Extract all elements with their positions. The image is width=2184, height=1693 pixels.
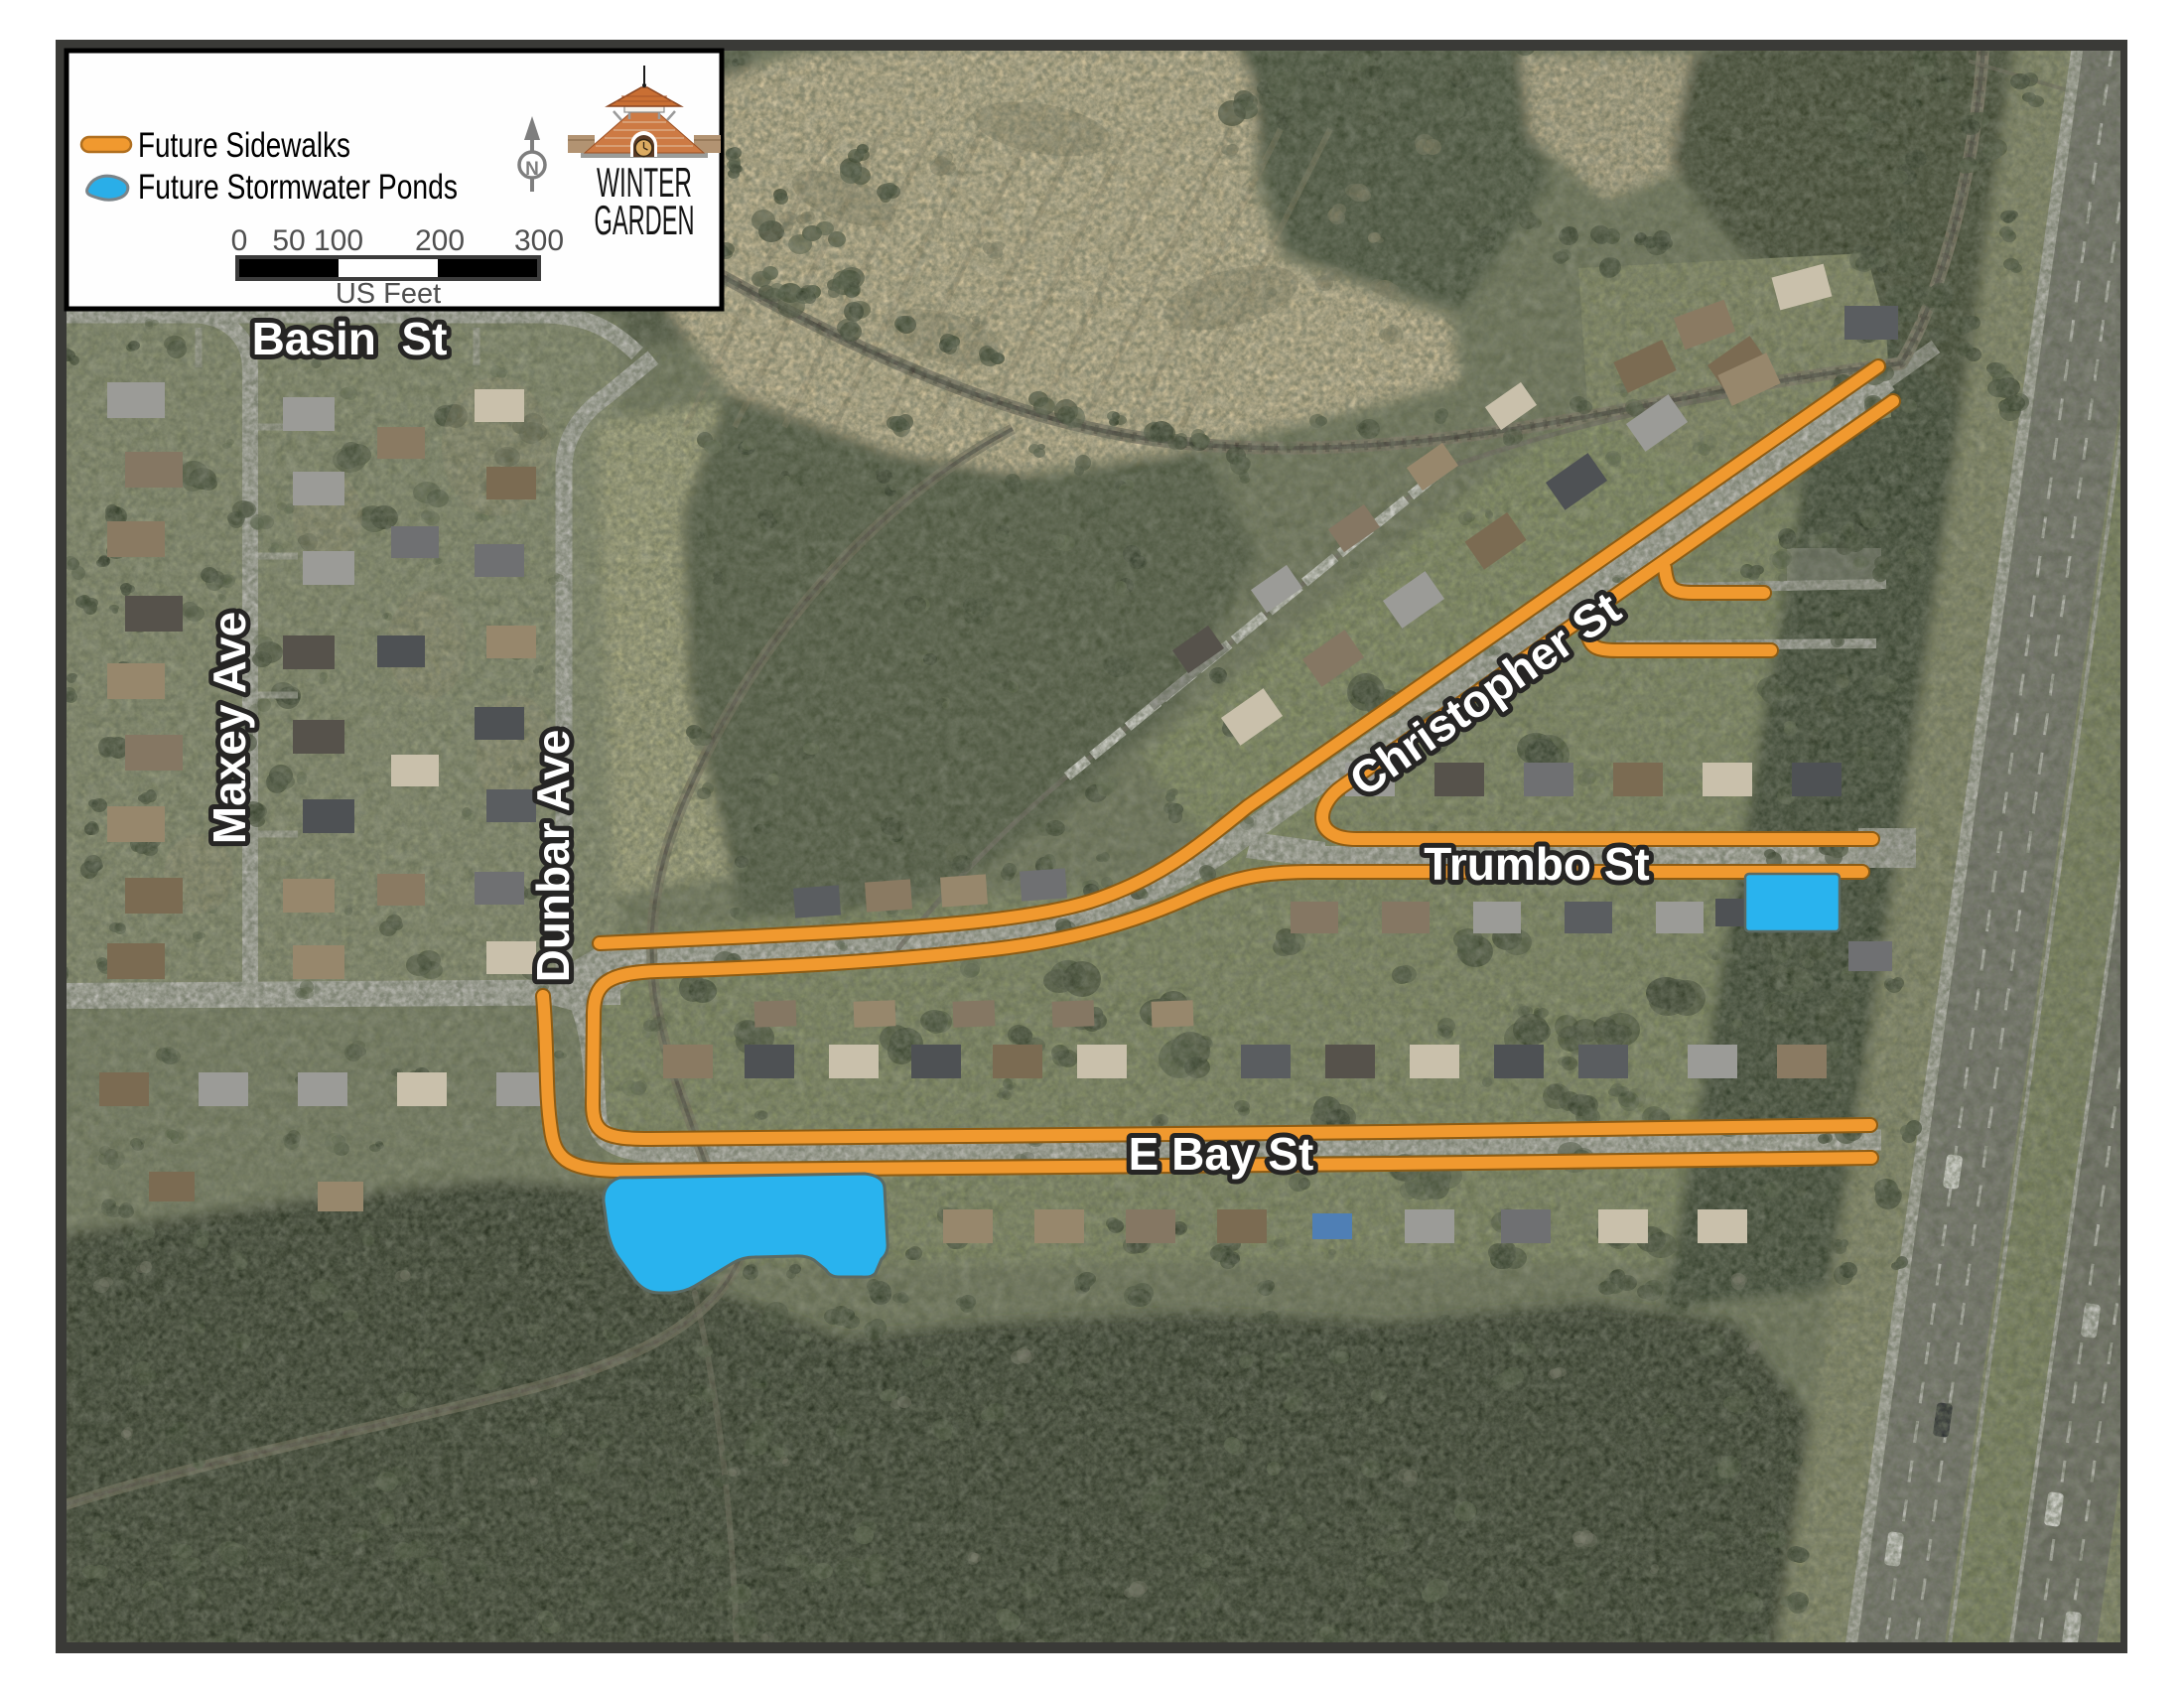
svg-text:Maxey Ave: Maxey Ave [204, 612, 255, 844]
svg-text:GARDEN: GARDEN [595, 197, 695, 243]
svg-text:Trumbo St: Trumbo St [1424, 838, 1649, 890]
svg-text:300: 300 [514, 224, 564, 257]
svg-text:E Bay St: E Bay St [1129, 1128, 1314, 1180]
svg-text:Dunbar Ave: Dunbar Ave [527, 730, 579, 983]
svg-text:US Feet: US Feet [336, 278, 441, 310]
svg-text:Future Stormwater Ponds: Future Stormwater Ponds [138, 168, 458, 207]
svg-text:Future Sidewalks: Future Sidewalks [138, 126, 350, 165]
svg-text:Basin St: Basin St [252, 313, 448, 364]
svg-text:N: N [525, 159, 539, 180]
svg-text:0: 0 [231, 224, 248, 257]
svg-text:50: 50 [272, 224, 305, 257]
svg-text:100: 100 [314, 224, 363, 257]
svg-text:200: 200 [415, 224, 465, 257]
